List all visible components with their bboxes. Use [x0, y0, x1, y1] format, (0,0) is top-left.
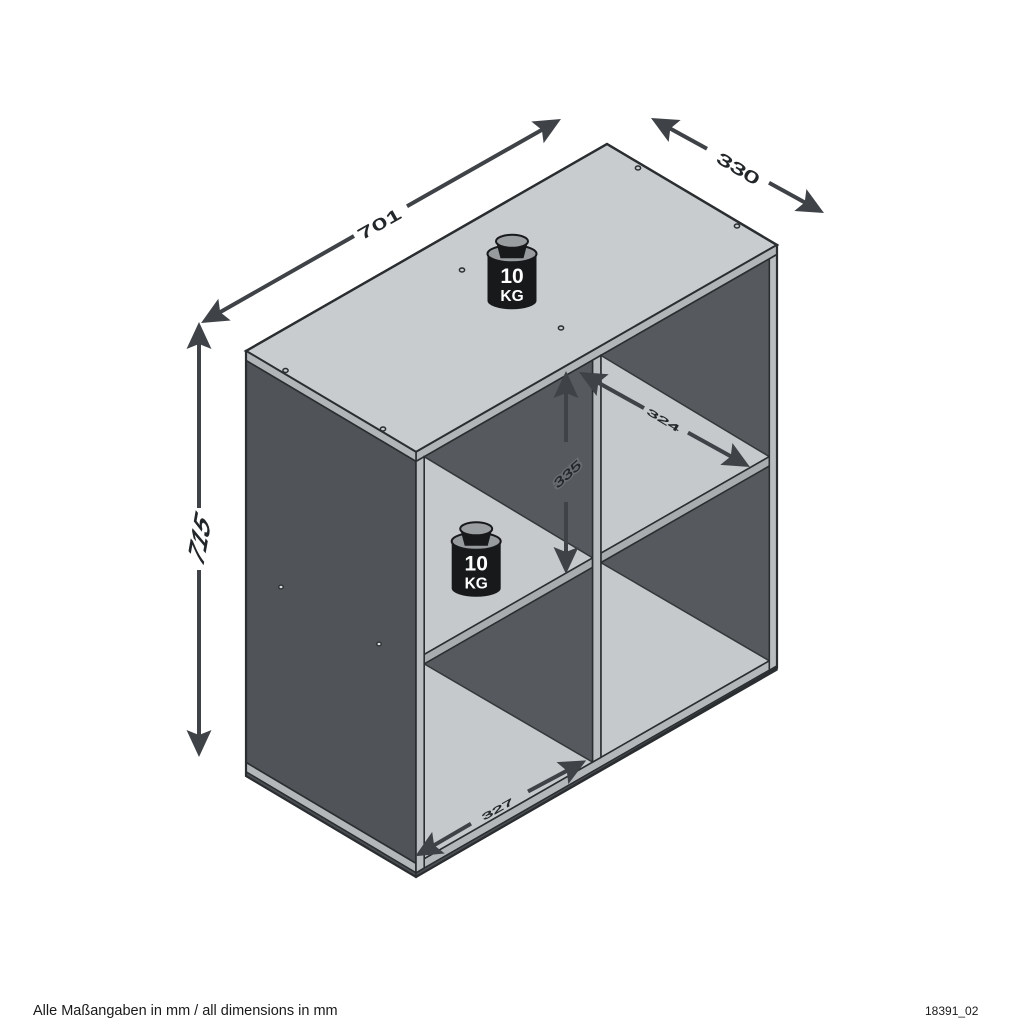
svg-text:715: 715: [185, 505, 215, 575]
svg-text:10: 10: [500, 265, 523, 288]
svg-text:KG: KG: [500, 288, 523, 305]
svg-text:KG: KG: [465, 576, 488, 593]
svg-text:10: 10: [465, 553, 488, 576]
svg-text:330: 330: [713, 149, 763, 189]
svg-text:701: 701: [355, 204, 406, 243]
